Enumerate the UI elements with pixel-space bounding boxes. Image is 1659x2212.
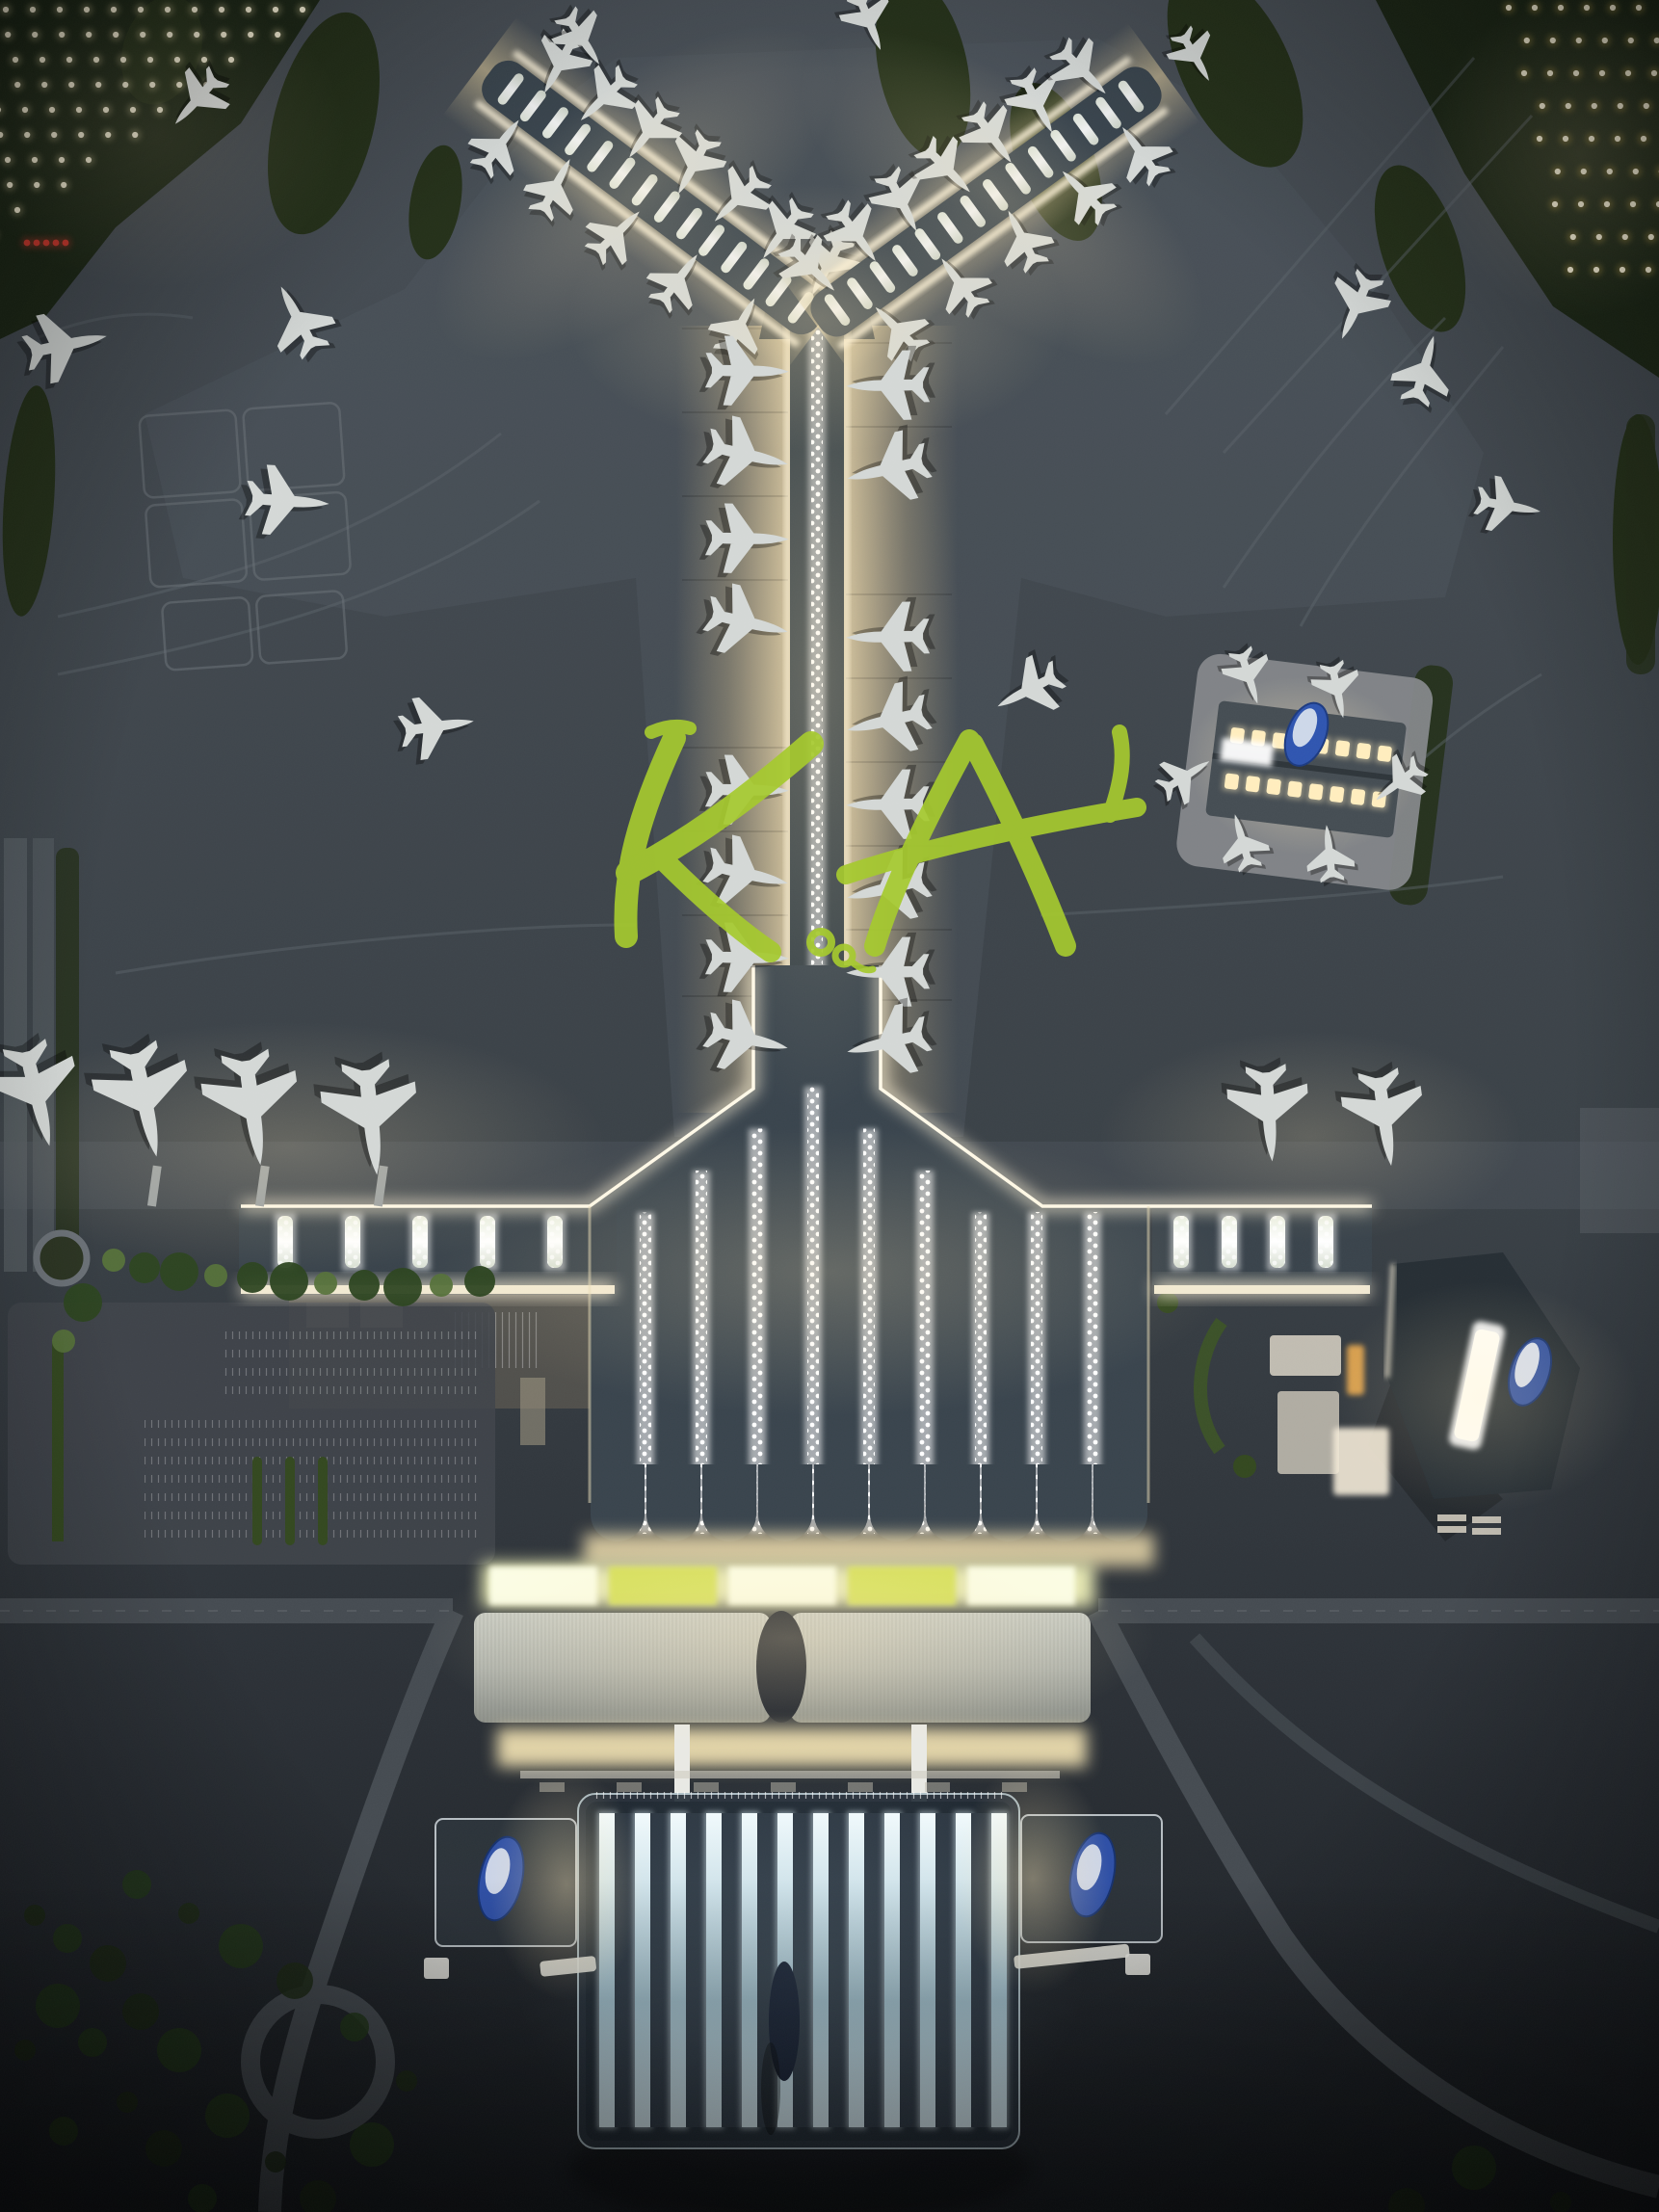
film-grain	[0, 0, 1659, 2212]
airport-model-night-photo: K&A	[0, 0, 1659, 2212]
scene-canvas: K&A	[0, 0, 1659, 2212]
